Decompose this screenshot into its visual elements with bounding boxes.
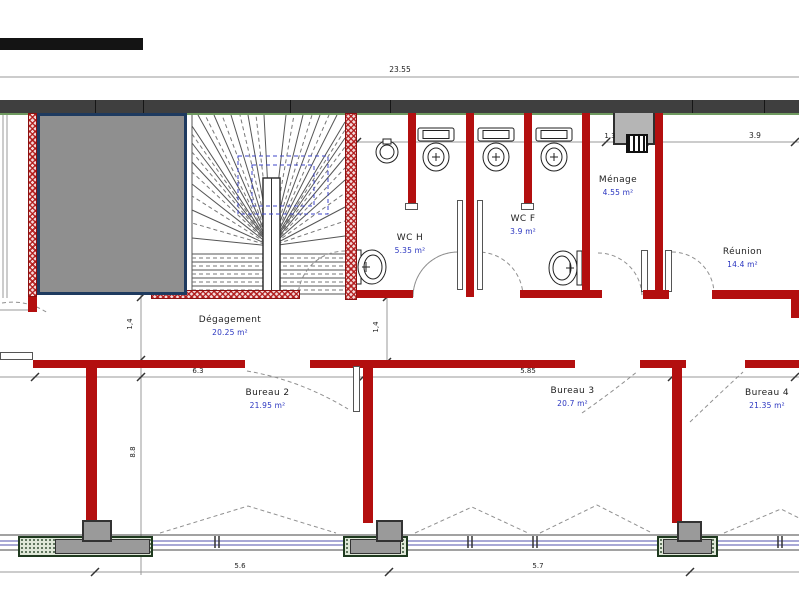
room-area: 4.55 m²	[588, 188, 648, 197]
room-area: 3.9 m²	[498, 227, 548, 236]
room-area: 21.35 m²	[735, 401, 799, 410]
room-name: WC H	[385, 233, 435, 243]
door-leaf	[457, 200, 463, 290]
room-name: Réunion	[705, 247, 780, 257]
corridor-south-wall	[745, 360, 799, 368]
facade-pier-column	[677, 521, 702, 542]
room-name: Bureau 2	[230, 388, 305, 398]
door-leaf	[477, 200, 483, 290]
wc-f-south-wall	[520, 290, 602, 298]
room-name: WC F	[498, 214, 548, 224]
stair-wall-left-hatched	[28, 113, 37, 297]
dim-bay-right: 5.85	[508, 367, 548, 375]
dim-window-left: 5.6	[222, 562, 258, 570]
toilet-icon	[478, 128, 514, 171]
menage-east-wall	[655, 113, 663, 293]
bureau2-west-wall	[86, 368, 97, 523]
wc-partition-wall	[408, 113, 416, 205]
room-area: 14.4 m²	[705, 260, 780, 269]
dim-wc-height: 1,4	[372, 315, 380, 339]
dim-top-right: 3.9	[735, 131, 775, 140]
door-jamb	[521, 203, 534, 210]
room-label-reunion: Réunion 14.4 m²	[705, 247, 780, 269]
corridor-south-wall	[640, 360, 686, 368]
room-name: Dégagement	[175, 315, 285, 325]
wc-partition-wall	[524, 113, 532, 205]
sink-oval-icon	[356, 250, 386, 284]
staircase	[192, 115, 345, 298]
room-label-bureau-3: Bureau 3 20.7 m²	[535, 386, 610, 408]
room-label-degagement: Dégagement 20.25 m²	[175, 315, 285, 337]
dim-depth: 8.8	[129, 440, 137, 464]
door-leaf	[353, 366, 360, 412]
room-name: Bureau 4	[735, 388, 799, 398]
elevator-shaft-block	[37, 113, 187, 295]
wall-joint	[692, 100, 693, 113]
dim-bay-left: 6.3	[180, 367, 216, 375]
adjacent-building-wall	[0, 38, 143, 50]
room-name: Ménage	[588, 175, 648, 185]
exterior-wall-top	[0, 100, 799, 113]
wall-joint	[764, 100, 765, 113]
wall-joint	[95, 100, 96, 113]
dim-window-right: 5.7	[520, 562, 556, 570]
facade-pier-column	[82, 520, 112, 542]
wc-partition-wall	[582, 113, 590, 297]
dim-corridor-height: 1,4	[126, 312, 134, 336]
stair-void-overlay	[238, 156, 328, 214]
reunion-corner-wall	[791, 299, 799, 318]
dim-overall-width: 23.55	[370, 65, 430, 74]
door-jamb	[641, 250, 648, 292]
dim-duct: 1,3	[600, 132, 620, 140]
wall-joint	[390, 100, 391, 113]
wall-joint	[290, 100, 291, 113]
stair-wall-right-hatched	[345, 113, 357, 300]
floor-plan-canvas: Dégagement 20.25 m² WC H 5.35 m² WC F 3.…	[0, 0, 799, 599]
reunion-door-cap	[643, 290, 669, 299]
room-area: 21.95 m²	[230, 401, 305, 410]
wall-end-jamb	[0, 352, 33, 360]
room-label-bureau-2: Bureau 2 21.95 m²	[230, 388, 305, 410]
room-area: 20.25 m²	[175, 328, 285, 337]
room-area: 5.35 m²	[385, 246, 435, 255]
bureau2-3-divider-wall	[363, 368, 373, 523]
wc-partition-wall	[466, 113, 474, 297]
corridor-west-wall	[28, 297, 37, 312]
room-label-wc-h: WC H 5.35 m²	[385, 233, 435, 255]
door-jamb	[405, 203, 418, 210]
facade-pier-column	[376, 520, 403, 542]
toilet-icon	[418, 128, 454, 171]
room-area: 20.7 m²	[535, 399, 610, 408]
room-label-bureau-4: Bureau 4 21.35 m²	[735, 388, 799, 410]
room-label-menage: Ménage 4.55 m²	[588, 175, 648, 197]
sink-round-icon	[376, 139, 398, 163]
toilet-icon	[536, 128, 572, 171]
reunion-south-wall	[712, 290, 799, 299]
bureau3-4-divider-wall	[672, 368, 682, 523]
room-name: Bureau 3	[535, 386, 610, 396]
sink-oval-icon	[549, 251, 582, 285]
vent-grille-icon	[626, 134, 648, 153]
door-jamb	[665, 250, 672, 292]
room-label-wc-f: WC F 3.9 m²	[498, 214, 548, 236]
wall-joint	[143, 100, 144, 113]
wc-h-south-wall	[357, 290, 413, 298]
